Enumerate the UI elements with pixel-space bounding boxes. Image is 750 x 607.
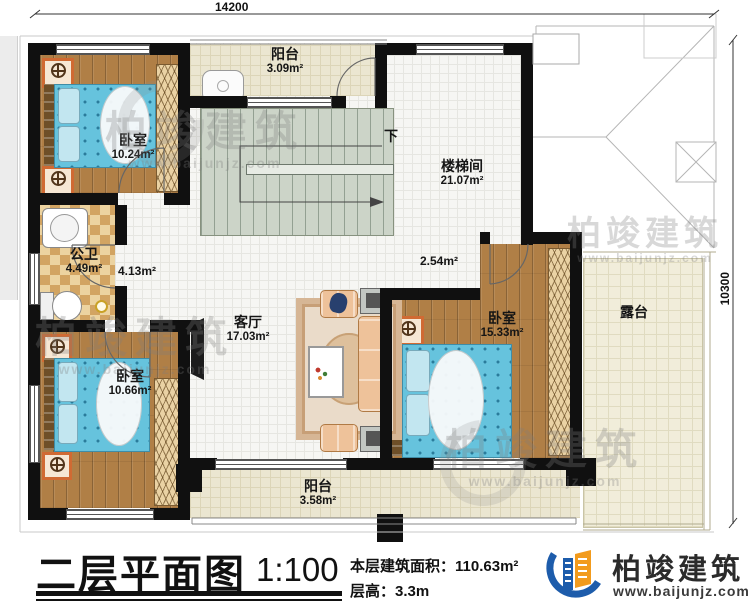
adjacent-building-outline	[0, 36, 18, 300]
pillow	[58, 126, 80, 162]
room-label-bedroom-topleft: 卧室 10.24m²	[112, 132, 155, 163]
window	[215, 459, 347, 470]
wardrobe	[156, 64, 180, 192]
room-label-bedroom-right: 卧室 15.33m²	[481, 310, 524, 341]
bed-headboard	[44, 84, 54, 166]
brand-url: www.baijunjz.com	[613, 583, 750, 599]
drawing-scale: 1:100	[256, 551, 339, 589]
room-label-stairwell: 楼梯间 21.07m²	[441, 158, 484, 189]
stair-down-label: 下	[384, 126, 398, 146]
balcony-bottom-floor	[190, 470, 580, 518]
wardrobe	[548, 248, 572, 456]
window	[29, 385, 40, 463]
wall	[480, 232, 490, 244]
wall	[28, 193, 118, 205]
terrace-floor	[583, 258, 703, 528]
room-label-balcony-bottom: 阳台 3.58m²	[300, 478, 336, 509]
wall	[164, 193, 190, 205]
window	[416, 44, 504, 55]
dimension-right: 10300	[718, 272, 732, 305]
room-label-bathroom: 公卫 4.49m²	[66, 246, 102, 277]
title-underline	[36, 599, 342, 601]
floor-height-text: 层高：3.3m	[350, 580, 429, 601]
window	[56, 44, 150, 55]
dimension-top: 14200	[215, 0, 248, 14]
room-label-living: 客厅 17.03m²	[227, 314, 270, 345]
wall	[330, 96, 346, 108]
pillow	[406, 350, 430, 392]
wall	[521, 43, 533, 245]
window	[29, 253, 40, 305]
area-label-hall-right: 2.54m²	[420, 254, 458, 268]
window	[433, 459, 524, 470]
wall	[178, 55, 190, 205]
column	[176, 464, 202, 492]
stair-handrail	[246, 164, 394, 175]
area-label-hall-left: 4.13m²	[118, 264, 156, 278]
pillow	[58, 88, 80, 124]
wall	[150, 508, 190, 520]
nightstand	[42, 452, 72, 480]
wall	[115, 205, 127, 245]
floor-area-text: 本层建筑面积：110.63m²	[350, 555, 518, 576]
wall	[28, 320, 105, 332]
company-logo-icon	[538, 544, 606, 602]
nightstand	[42, 166, 74, 196]
wall	[115, 286, 127, 332]
wall	[380, 288, 480, 300]
armchair	[320, 424, 358, 452]
title-underline	[36, 591, 342, 596]
sink-icon	[42, 208, 88, 248]
room-label-balcony-top: 阳台 3.09m²	[267, 46, 303, 77]
wall	[28, 508, 68, 520]
column	[566, 458, 596, 486]
pillow	[406, 394, 430, 436]
wall	[380, 288, 392, 470]
wall	[380, 458, 435, 470]
bay-window	[533, 34, 579, 64]
wall	[343, 458, 380, 470]
pillow	[58, 362, 78, 402]
pillow	[58, 404, 78, 444]
lamp-icon	[95, 300, 108, 313]
wall	[190, 96, 247, 108]
brand-name: 柏竣建筑	[612, 546, 744, 588]
floor-plan-page: 14200 10300 阳台 3.09m² 卧室 10.24m² 楼梯间 21.…	[0, 0, 750, 607]
column	[377, 514, 403, 542]
roof-lines	[533, 14, 716, 248]
bed-blanket	[428, 350, 484, 450]
wall	[375, 44, 387, 108]
wall	[570, 232, 582, 470]
window	[247, 97, 332, 108]
bed-headboard	[44, 358, 54, 450]
flowers-icon	[314, 366, 332, 382]
room-label-bedroom-bottomleft: 卧室 10.66m²	[109, 368, 152, 399]
window	[66, 509, 154, 520]
room-label-terrace: 露台	[620, 304, 648, 321]
wall	[150, 320, 200, 332]
toilet-icon	[52, 291, 82, 321]
chimney-icon	[676, 142, 716, 182]
